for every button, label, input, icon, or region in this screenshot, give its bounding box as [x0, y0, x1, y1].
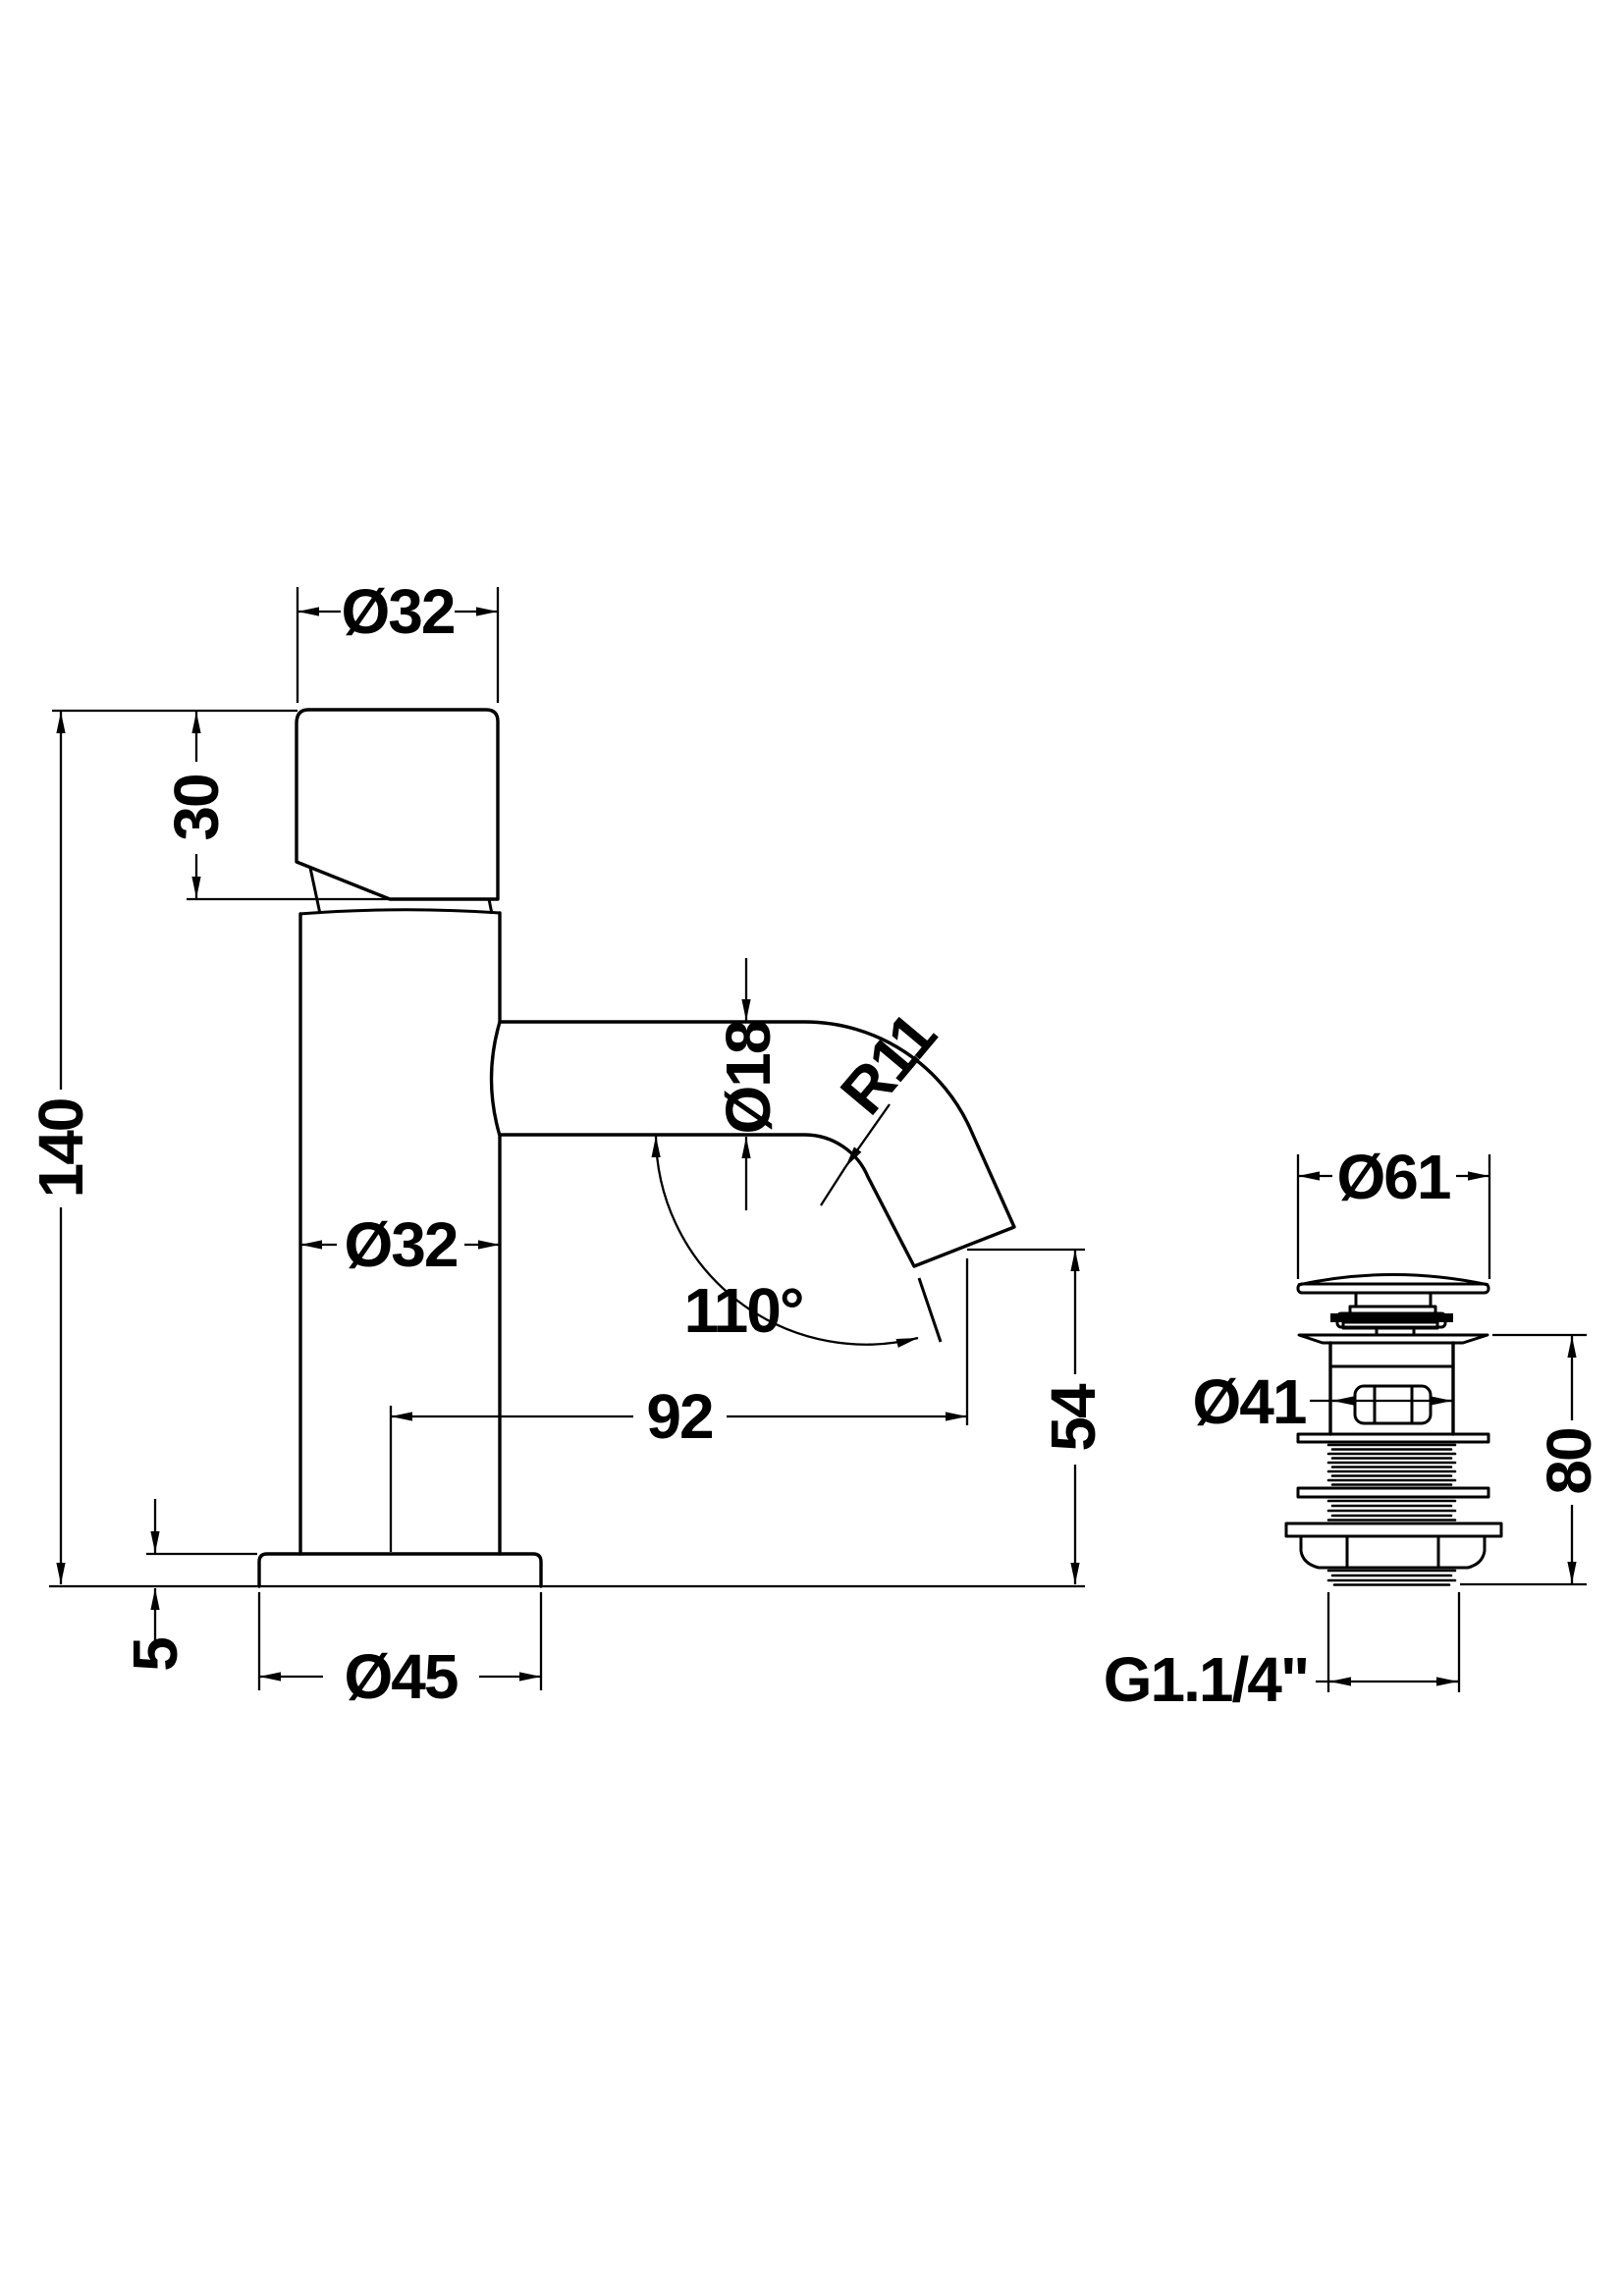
label-cap-diameter: Ø61 [1337, 1142, 1450, 1212]
waste-backnut-flange [1286, 1523, 1501, 1536]
tap-body-shoulder [299, 910, 500, 914]
tap-base-flange [259, 1554, 541, 1586]
label-handle-height: 30 [161, 774, 232, 840]
tap-handle-skirt-line [310, 868, 320, 914]
tap-body-right-edge [492, 913, 501, 1554]
tap-spout-face-extension-line [919, 1278, 941, 1342]
label-spout-bend-radius: R11 [827, 1000, 949, 1127]
waste-mid-washer [1298, 1488, 1488, 1497]
waste-cap-rim [1298, 1284, 1488, 1293]
leader-bend-radius-tail [821, 1167, 845, 1205]
label-waste-height: 80 [1534, 1428, 1604, 1494]
label-body-diameter: Ø32 [345, 1209, 458, 1280]
label-spout-angle: 110° [684, 1275, 803, 1346]
label-base-diameter: Ø45 [345, 1641, 458, 1712]
waste-top-flange [1299, 1335, 1488, 1343]
technical-drawing-canvas: Ø32 30 140 Ø32 Ø18 R11 110° 92 54 5 Ø45 … [0, 0, 1623, 2296]
label-spout-reach: 92 [646, 1381, 713, 1452]
waste-backnut-hex [1301, 1536, 1485, 1568]
waste-basin-plate [1298, 1434, 1488, 1442]
label-spout-clearance: 54 [1038, 1383, 1109, 1452]
label-overall-height: 140 [26, 1099, 96, 1199]
waste-outline [1286, 1275, 1501, 1585]
label-spout-diameter: Ø18 [713, 1021, 784, 1134]
waste-bottom-thread [1328, 1571, 1455, 1585]
waste-upper-thread [1328, 1445, 1455, 1485]
tap-handle [297, 710, 498, 899]
waste-side-hole [1355, 1386, 1431, 1423]
tap-dimension-lines [52, 587, 1085, 1690]
drawing-sheet: Ø32 30 140 Ø32 Ø18 R11 110° 92 54 5 Ø45 … [0, 0, 1623, 2296]
label-base-thickness: 5 [120, 1638, 190, 1672]
label-top-diameter: Ø32 [342, 576, 455, 647]
dimension-labels: Ø32 30 140 Ø32 Ø18 R11 110° 92 54 5 Ø45 … [26, 576, 1604, 1715]
label-thread-size: G1.1/4" [1104, 1644, 1308, 1715]
waste-dimension-lines [1298, 1154, 1587, 1692]
label-waste-body-diameter: Ø41 [1193, 1366, 1306, 1437]
waste-lower-thread [1328, 1501, 1455, 1521]
